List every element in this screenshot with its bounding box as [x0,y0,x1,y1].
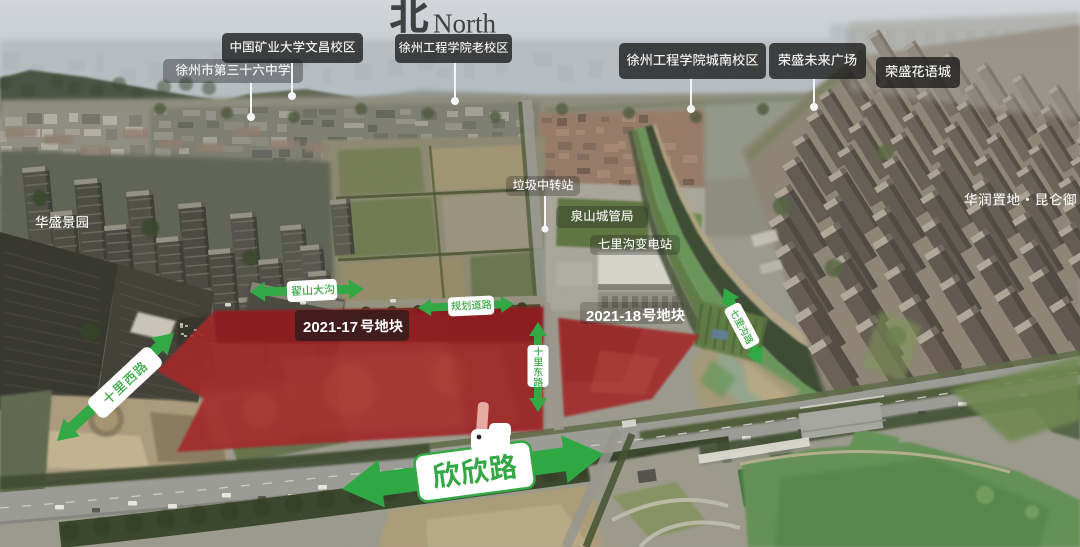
svg-text:North: North [433,9,496,39]
svg-text:2021-17: 2021-17 [303,319,358,336]
svg-text:2021-18: 2021-18 [586,308,641,325]
